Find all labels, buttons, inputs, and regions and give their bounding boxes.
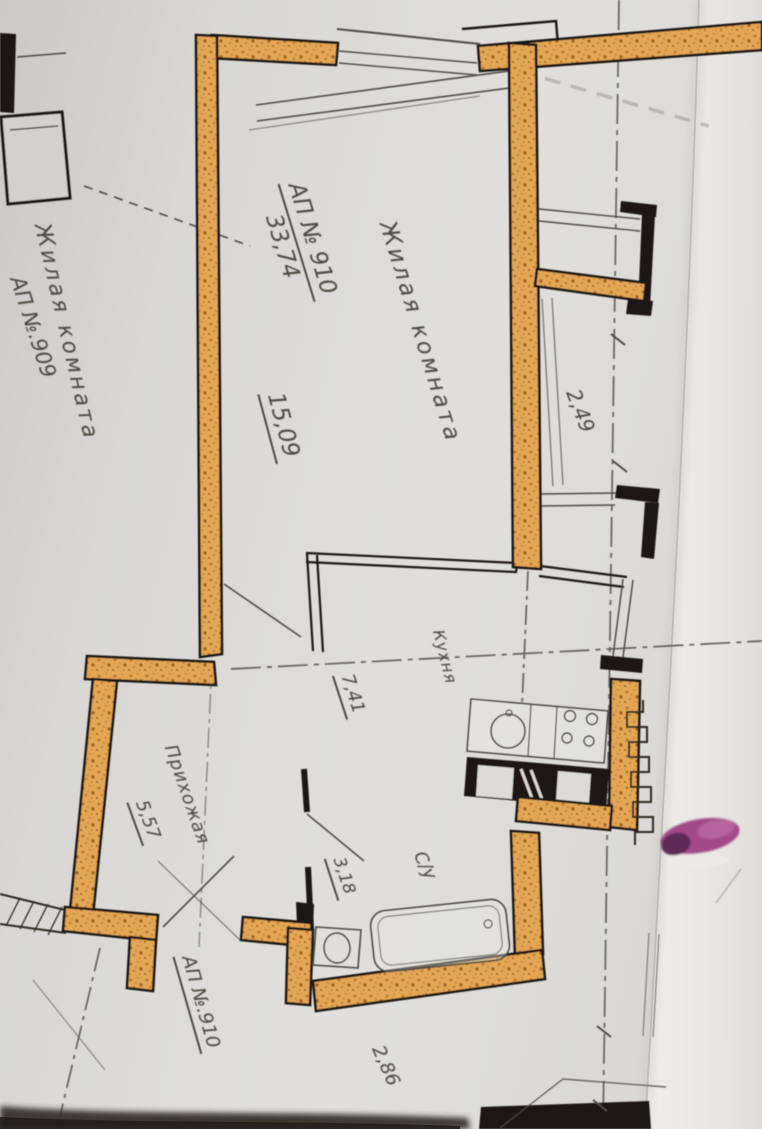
floor-plan-photo: АП № 910 33,74 Жилая комната 15,09 2,49 …: [0, 0, 762, 1129]
door-leaf-entry: [163, 856, 234, 927]
bathtub-icon: [369, 898, 511, 973]
wall-black-top-left: [0, 33, 16, 113]
paper-fold: [645, 0, 762, 1129]
hatched-wall: [0, 894, 66, 935]
bathroom-fixtures: [313, 898, 511, 973]
bathroom-sink-icon: [313, 927, 361, 968]
door-leaf-bathroom: [307, 814, 364, 861]
kitchen-fixtures: [467, 699, 608, 763]
floor-plan-drawing: [0, 0, 762, 1129]
door-leaf-living-room: [224, 584, 301, 637]
